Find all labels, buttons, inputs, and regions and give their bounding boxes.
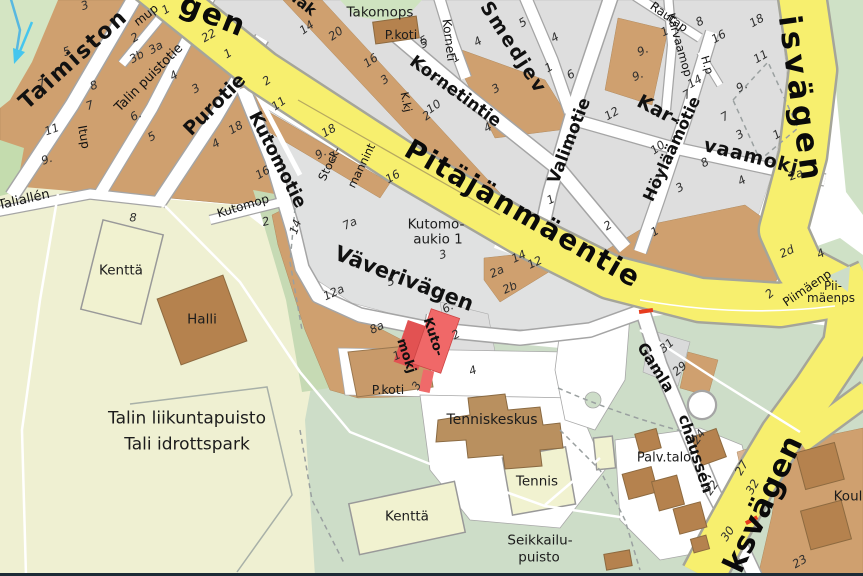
map-label: 2 xyxy=(450,328,462,342)
map-label: 3 xyxy=(734,128,746,142)
map-label: 2 xyxy=(602,219,614,233)
map-label: 8 xyxy=(129,212,136,224)
place-label-piimaenps-2: mäenps xyxy=(807,292,855,304)
street-label-taliallen: Taliallén xyxy=(0,188,51,212)
map-label: 11 xyxy=(270,95,289,113)
map-label: 3b xyxy=(128,48,146,65)
street-label-vaamokj: vaamokj xyxy=(702,136,801,178)
street-label-taimiston: Taimiston xyxy=(16,6,133,114)
map-label: 9. xyxy=(40,153,54,168)
map-label: 2 xyxy=(261,215,271,228)
map-label: 16 xyxy=(710,28,728,45)
street-label-itup: Itup xyxy=(76,124,92,149)
map-label: 4 xyxy=(468,364,479,377)
street-label-smedjev: Smedjev xyxy=(476,0,550,98)
map-label: 1 xyxy=(649,225,661,239)
street-label-tak-fragment: Tak xyxy=(287,0,319,19)
map-label: 14 xyxy=(298,19,317,37)
map-label: 1 xyxy=(545,193,557,207)
street-label-stockmannint-2: mannint xyxy=(346,142,377,190)
map-label: 7 xyxy=(719,110,731,124)
street-label-vaverivagen: Väverivägen xyxy=(332,243,477,315)
map-label: 14 xyxy=(510,249,528,266)
place-label-kutomoaukio-2: aukio 1 xyxy=(413,233,463,247)
road-label-pitajanmaentie: Pitäjänmäentie xyxy=(400,135,646,293)
map-label: 3 xyxy=(438,248,448,261)
map-label: 9. xyxy=(636,43,651,58)
map-label: 4 xyxy=(472,35,484,49)
map-label: 9. xyxy=(631,68,646,83)
street-label-hp: H.p xyxy=(699,55,715,76)
map-label: 14 xyxy=(288,218,304,236)
map-label: 1 xyxy=(450,51,462,65)
map-label: 8 xyxy=(699,156,711,170)
place-label-seikkailupuisto-1: Seikkailu- xyxy=(507,534,572,548)
map-canvas: genPitäjänmäentieisvägenksvägenTaimiston… xyxy=(0,0,863,576)
map-label: 6. xyxy=(128,108,143,123)
map-label: 5 xyxy=(146,130,158,144)
map-label: 12a xyxy=(322,283,347,303)
place-label-kentta-south: Kenttä xyxy=(385,510,429,524)
place-label-tenniskeskus: Tenniskeskus xyxy=(446,413,537,427)
place-label-tennis: Tennis xyxy=(516,475,558,489)
map-label: 5 xyxy=(418,34,430,48)
map-label: 3 xyxy=(674,181,686,195)
map-label: 11 xyxy=(752,48,770,65)
map-label: 2 xyxy=(129,31,141,45)
map-label: 14 xyxy=(686,73,704,90)
map-label: 4 xyxy=(815,247,827,261)
street-label-valimotie: Valimotie xyxy=(546,96,594,186)
map-label: 20 xyxy=(327,25,346,43)
highlighted-street-label-kuto: Kuto- xyxy=(421,316,446,358)
map-label: 22 xyxy=(703,479,721,498)
map-label: 8 xyxy=(89,79,100,92)
map-label: 27 xyxy=(733,459,750,477)
place-label-pkoti-south: P.koti xyxy=(372,384,404,397)
place-label-koulu: Koul xyxy=(834,490,863,504)
street-label-mup: mup xyxy=(132,2,161,28)
place-label-kutomoaukio-1: Kutomo- xyxy=(408,218,465,232)
map-label: 16 xyxy=(362,52,381,70)
map-label: 12 xyxy=(603,105,621,122)
map-label: 9. xyxy=(734,79,749,94)
place-label-takomops: Takomops xyxy=(347,6,414,20)
place-label-halli: Halli xyxy=(187,313,217,327)
map-label: 8a xyxy=(368,320,386,336)
map-label: 18 xyxy=(320,122,338,139)
street-label-kkj: K.kj xyxy=(399,91,414,113)
place-label-kentta-north: Kenttä xyxy=(99,264,143,278)
map-label: 1 xyxy=(543,61,555,75)
map-label: 31 xyxy=(658,337,677,355)
map-label: 11 xyxy=(43,122,61,138)
map-label: 4 xyxy=(549,31,561,45)
map-label: 29 xyxy=(671,360,690,378)
map-label: 1 xyxy=(771,128,783,142)
map-label: 12 xyxy=(526,255,544,272)
map-label: 7 xyxy=(85,99,96,112)
map-label: 7a xyxy=(341,216,359,232)
map-label: 3 xyxy=(490,82,502,96)
map-label: 4 xyxy=(210,137,222,151)
place-label-pkoti-north: P.koti xyxy=(385,29,417,42)
map-label: 1 xyxy=(160,3,172,17)
map-label: 2b xyxy=(501,280,519,297)
map-label: 3 xyxy=(190,82,202,96)
map-label: 23 xyxy=(791,553,809,570)
map-label: 2 xyxy=(763,287,776,301)
map-labels-layer: genPitäjänmäentieisvägenksvägenTaimiston… xyxy=(0,0,863,576)
map-label: 2d xyxy=(778,244,796,261)
map-label: 2a xyxy=(488,264,506,280)
map-label: 3 xyxy=(80,0,91,13)
map-label: 5 xyxy=(517,16,529,30)
place-label-tali-idrottspark: Tali idrottspark xyxy=(124,437,250,454)
place-label-palvtalo: Palv.talo xyxy=(637,452,691,465)
map-label: 8 xyxy=(694,15,706,29)
map-label: 18 xyxy=(748,12,766,29)
map-label: 2 xyxy=(261,74,274,88)
map-label: 4 xyxy=(168,69,180,83)
map-label: 16 xyxy=(384,168,402,185)
map-label: 3 xyxy=(379,73,392,87)
map-label: 1 xyxy=(222,47,234,61)
map-label: 18 xyxy=(227,119,245,136)
map-label: 3 xyxy=(410,380,424,392)
place-label-talin-liikuntapuisto: Talin liikuntapuisto xyxy=(108,411,266,428)
place-label-seikkailupuisto-2: puisto xyxy=(518,551,559,565)
map-label: 6 xyxy=(565,68,577,82)
map-label: 4 xyxy=(736,174,748,188)
